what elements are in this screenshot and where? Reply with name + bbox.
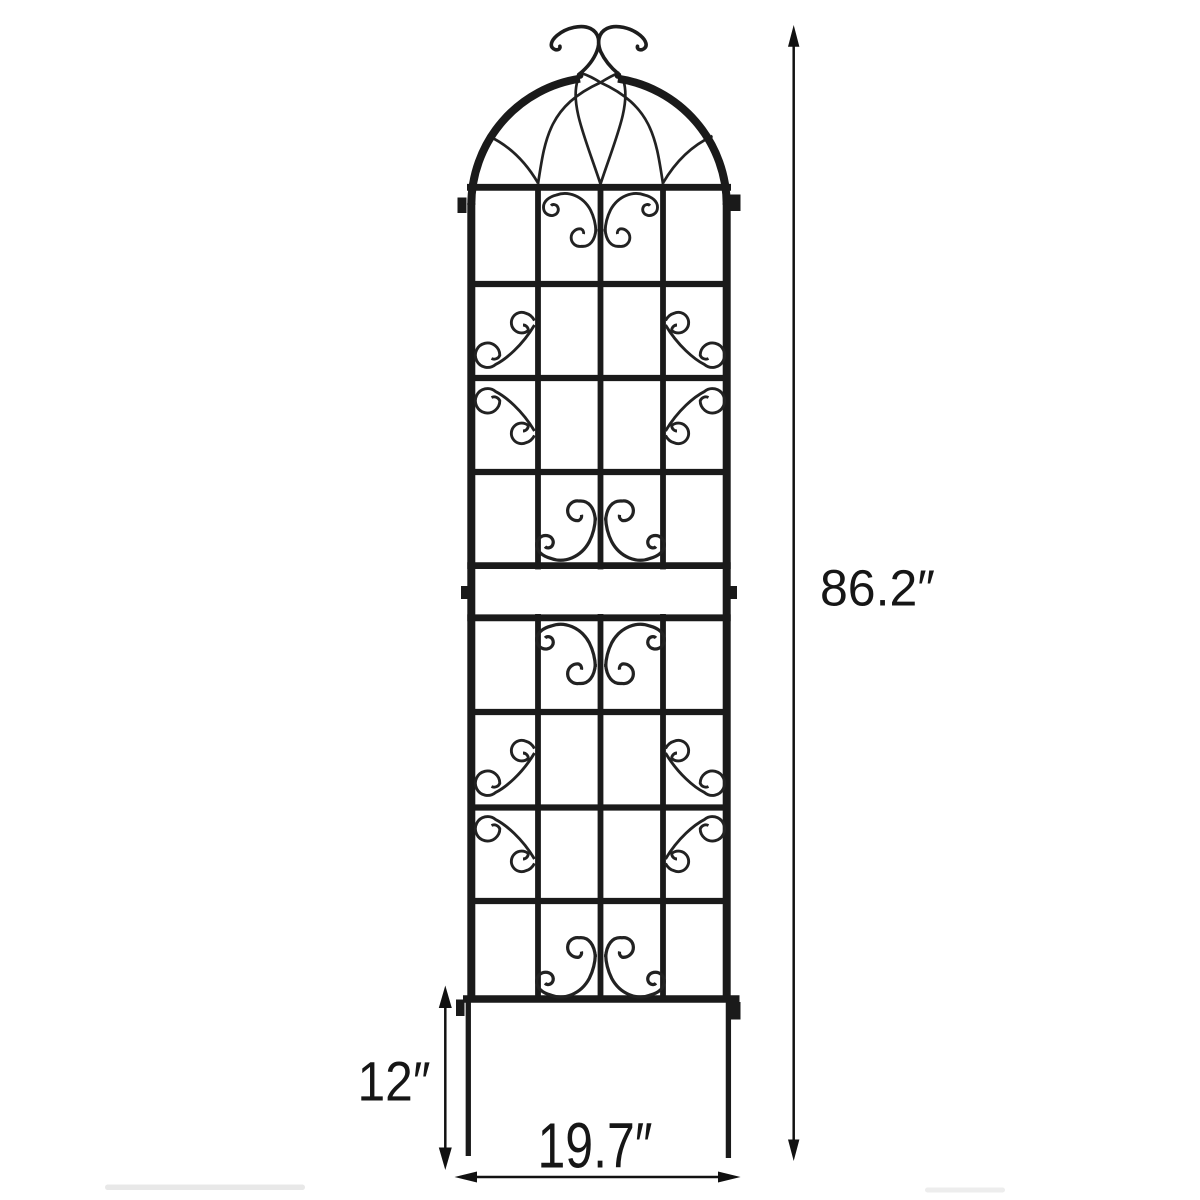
svg-text:19.7″: 19.7″ [538, 1110, 653, 1182]
svg-text:86.2″: 86.2″ [820, 560, 935, 617]
svg-text:12″: 12″ [358, 1050, 431, 1113]
